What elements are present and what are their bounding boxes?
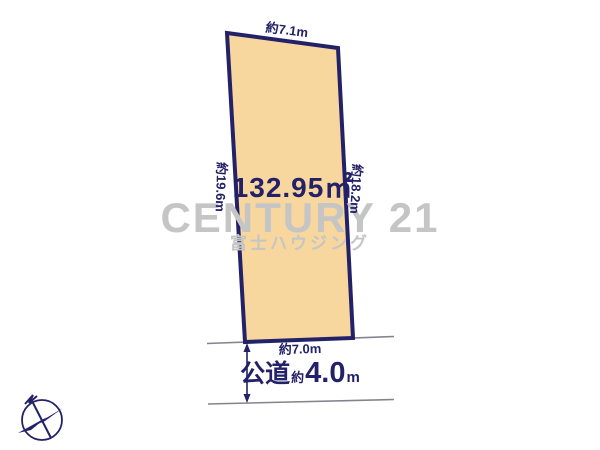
road-label: 公道 約 4.0 m — [240, 354, 360, 390]
road-approx-label: 約 — [291, 367, 304, 386]
road-width-arrowhead-up — [244, 343, 251, 352]
road-width-value: 4.0 — [305, 357, 345, 390]
road-width-arrowhead-down — [244, 394, 251, 403]
watermark-company: 富士ハウジング — [0, 235, 600, 252]
road-edge-bottom-line — [208, 400, 394, 405]
land-plot-diagram: CENTURY 21 富士ハウジング 約7.1m 約19.6m 約18.2m 約… — [0, 0, 600, 450]
plot-area-label: 132.95㎡ — [233, 166, 354, 206]
dimension-left-label: 約19.6m — [212, 162, 233, 213]
road-width-unit: m — [347, 369, 360, 386]
compass-icon — [18, 395, 63, 440]
road-type-label: 公道 — [240, 354, 290, 390]
